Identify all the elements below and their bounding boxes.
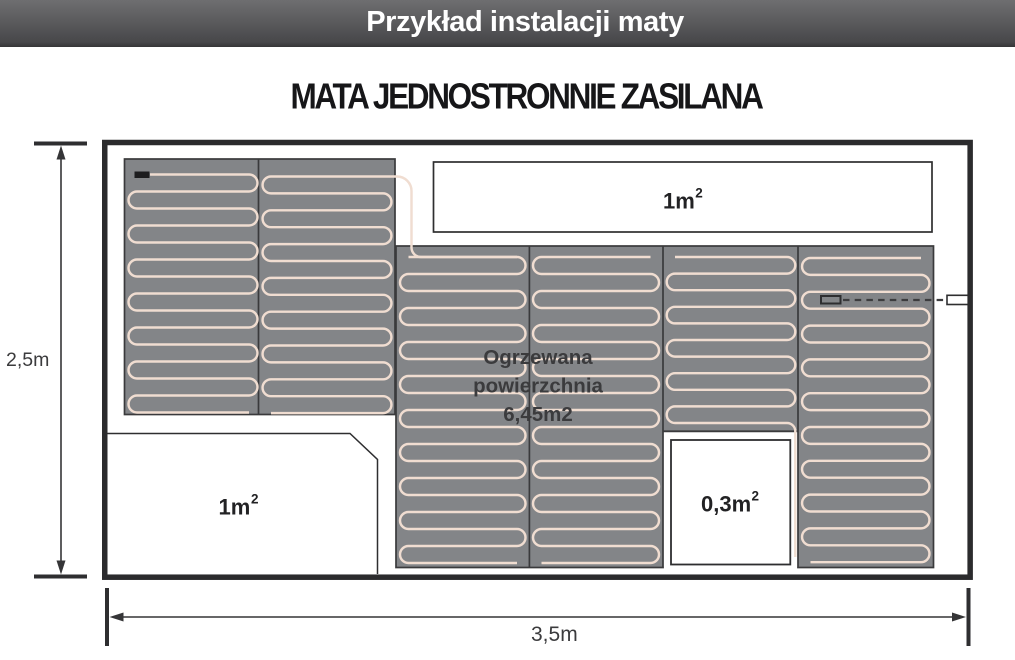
- svg-text:6,45m2: 6,45m2: [503, 403, 573, 426]
- svg-text:2,5m: 2,5m: [6, 349, 49, 371]
- svg-text:2: 2: [752, 489, 760, 504]
- svg-text:1m: 1m: [219, 495, 251, 520]
- svg-text:2: 2: [695, 186, 703, 201]
- svg-text:3,5m: 3,5m: [531, 623, 578, 646]
- svg-text:2: 2: [251, 492, 259, 507]
- svg-text:powierzchnia: powierzchnia: [473, 375, 603, 398]
- svg-text:1m: 1m: [663, 189, 695, 214]
- svg-text:Ogrzewana: Ogrzewana: [483, 346, 593, 369]
- svg-text:0,3m: 0,3m: [701, 492, 751, 517]
